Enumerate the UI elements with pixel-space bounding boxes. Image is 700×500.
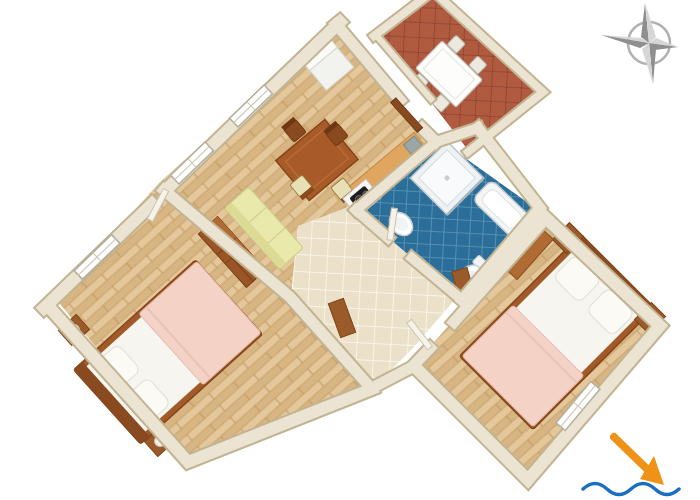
sea-direction xyxy=(583,437,679,495)
floor-plan-image: 3D apartment floor plan, bird's-eye view xyxy=(0,0,700,500)
sea-waves-icon xyxy=(583,484,679,495)
floor-plan-page: 3D apartment floor plan, bird's-eye view xyxy=(0,0,700,500)
sea-direction-arrow-icon xyxy=(614,437,648,470)
compass-rose-icon xyxy=(601,3,678,84)
